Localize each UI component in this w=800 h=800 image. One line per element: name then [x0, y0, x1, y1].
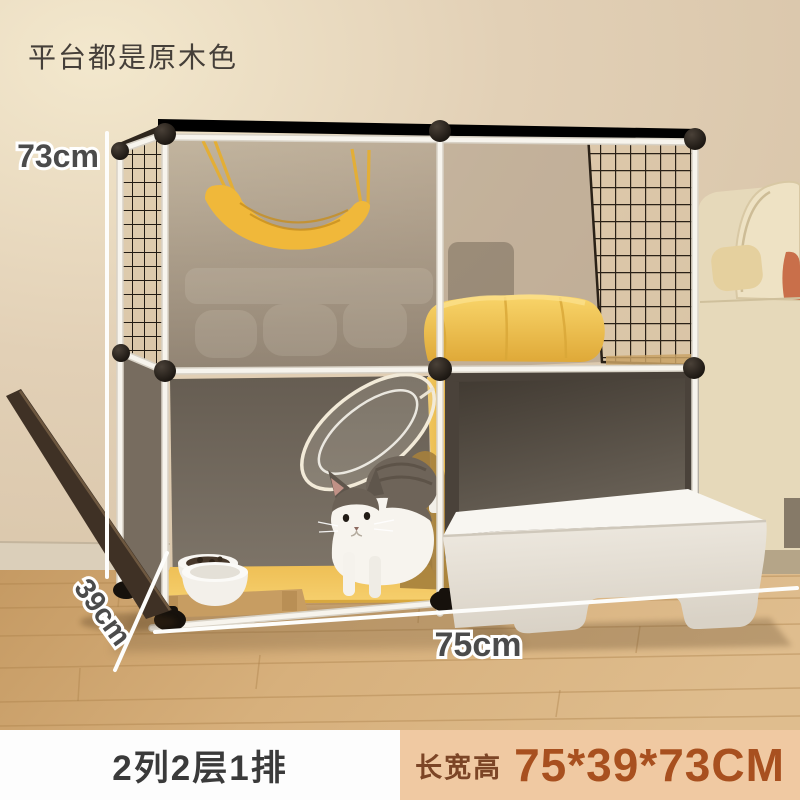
cat-eye-right	[364, 512, 370, 520]
config-caption: 2列2层1排	[0, 730, 400, 800]
couch-side-shadow	[784, 498, 800, 548]
caption-bar: 2列2层1排 长宽高 75*39*73CM	[0, 730, 800, 800]
couch-small-pillow	[710, 244, 764, 293]
width-dimension-label: 75cm	[435, 626, 522, 664]
wire-mesh-left	[119, 132, 166, 371]
scene: 73cm 39cm 75cm	[0, 0, 800, 800]
height-dimension-label: 73cm	[17, 138, 99, 174]
cat-leg-front-left	[343, 552, 355, 596]
platform-color-note: 平台都是原木色	[28, 36, 238, 76]
stand-leg-right	[282, 591, 297, 611]
cat-leg-front-right	[369, 556, 381, 598]
size-caption-value: 75*39*73CM	[514, 738, 785, 792]
product-image: 73cm 39cm 75cm 平台都是原木色 2列2层1排 长宽高 75*39*…	[0, 0, 800, 800]
cat-bed	[424, 295, 605, 362]
size-caption: 长宽高 75*39*73CM	[400, 730, 800, 800]
couch-orange-pillow	[782, 252, 800, 300]
cat-eye-left	[343, 514, 349, 522]
reflected-couch	[185, 268, 433, 358]
size-caption-prefix: 长宽高	[415, 746, 502, 785]
